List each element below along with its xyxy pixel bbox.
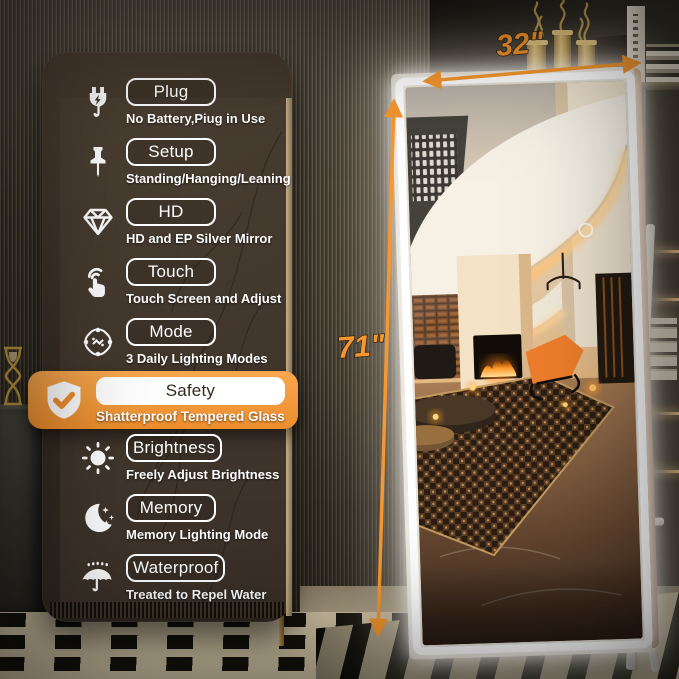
feature-pill-safety: Safety xyxy=(96,377,285,405)
plug-icon xyxy=(80,84,116,120)
feature-pill-waterproof: Waterproof xyxy=(126,554,225,582)
reflected-fireplace xyxy=(457,254,535,398)
feature-brightness: Brightness Freely Adjust Brightness xyxy=(80,434,298,482)
sun-icon xyxy=(80,440,116,476)
product-infographic: Plug No Battery,Piug in Use Setup Standi… xyxy=(0,0,679,679)
feature-desc-brightness: Freely Adjust Brightness xyxy=(126,467,279,482)
sideboard xyxy=(0,404,46,612)
hourglass-decor xyxy=(1,344,25,408)
feature-hd: HD HD and EP Silver Mirror xyxy=(80,198,298,246)
feature-waterproof: Waterproof Treated to Repel Water xyxy=(80,554,298,602)
pushpin-icon xyxy=(80,144,116,180)
feature-pill-hd: HD xyxy=(126,198,216,226)
touch-icon xyxy=(80,264,116,300)
book-stack xyxy=(649,318,677,380)
feature-setup: Setup Standing/Hanging/Leaning xyxy=(80,138,298,186)
book-stack xyxy=(646,44,679,82)
reflected-screen xyxy=(595,273,634,384)
feature-touch: Touch Touch Screen and Adjust xyxy=(80,258,298,306)
feature-plug: Plug No Battery,Piug in Use xyxy=(80,78,298,126)
shelf-led-strip xyxy=(648,298,679,301)
mirror-touch-sensor[interactable] xyxy=(579,223,592,236)
shelf-led-strip xyxy=(648,412,679,415)
shield-check-icon xyxy=(42,378,86,422)
feature-desc-mode: 3 Daily Lighting Modes xyxy=(126,351,268,366)
moon-stars-icon xyxy=(80,500,116,536)
feature-desc-touch: Touch Screen and Adjust xyxy=(126,291,281,306)
feature-pill-plug: Plug xyxy=(126,78,216,106)
feature-mode: Mode 3 Daily Lighting Modes xyxy=(80,318,298,366)
feature-pill-mode: Mode xyxy=(126,318,216,346)
panel-fringe xyxy=(50,602,288,618)
reflected-sofa xyxy=(413,344,456,379)
feature-safety-highlighted: Safety Shatterproof Tempered Glass xyxy=(28,371,298,429)
feature-memory: Memory Memory Lighting Mode xyxy=(80,494,298,542)
feature-pill-memory: Memory xyxy=(126,494,216,522)
mirror-reflection-scene xyxy=(405,81,642,646)
feature-pill-setup: Setup xyxy=(126,138,216,166)
feature-desc-setup: Standing/Hanging/Leaning xyxy=(126,171,291,186)
feature-pill-brightness: Brightness xyxy=(126,434,222,462)
feature-desc-waterproof: Treated to Repel Water xyxy=(126,587,266,602)
diamond-icon xyxy=(80,204,116,240)
mode-icon xyxy=(80,324,116,360)
led-full-length-mirror xyxy=(391,66,657,660)
feature-pill-touch: Touch xyxy=(126,258,216,286)
feature-desc-safety: Shatterproof Tempered Glass xyxy=(96,409,285,424)
feature-desc-memory: Memory Lighting Mode xyxy=(126,527,268,542)
umbrella-icon xyxy=(80,560,116,596)
feature-desc-hd: HD and EP Silver Mirror xyxy=(126,231,272,246)
feature-desc-plug: No Battery,Piug in Use xyxy=(126,111,265,126)
